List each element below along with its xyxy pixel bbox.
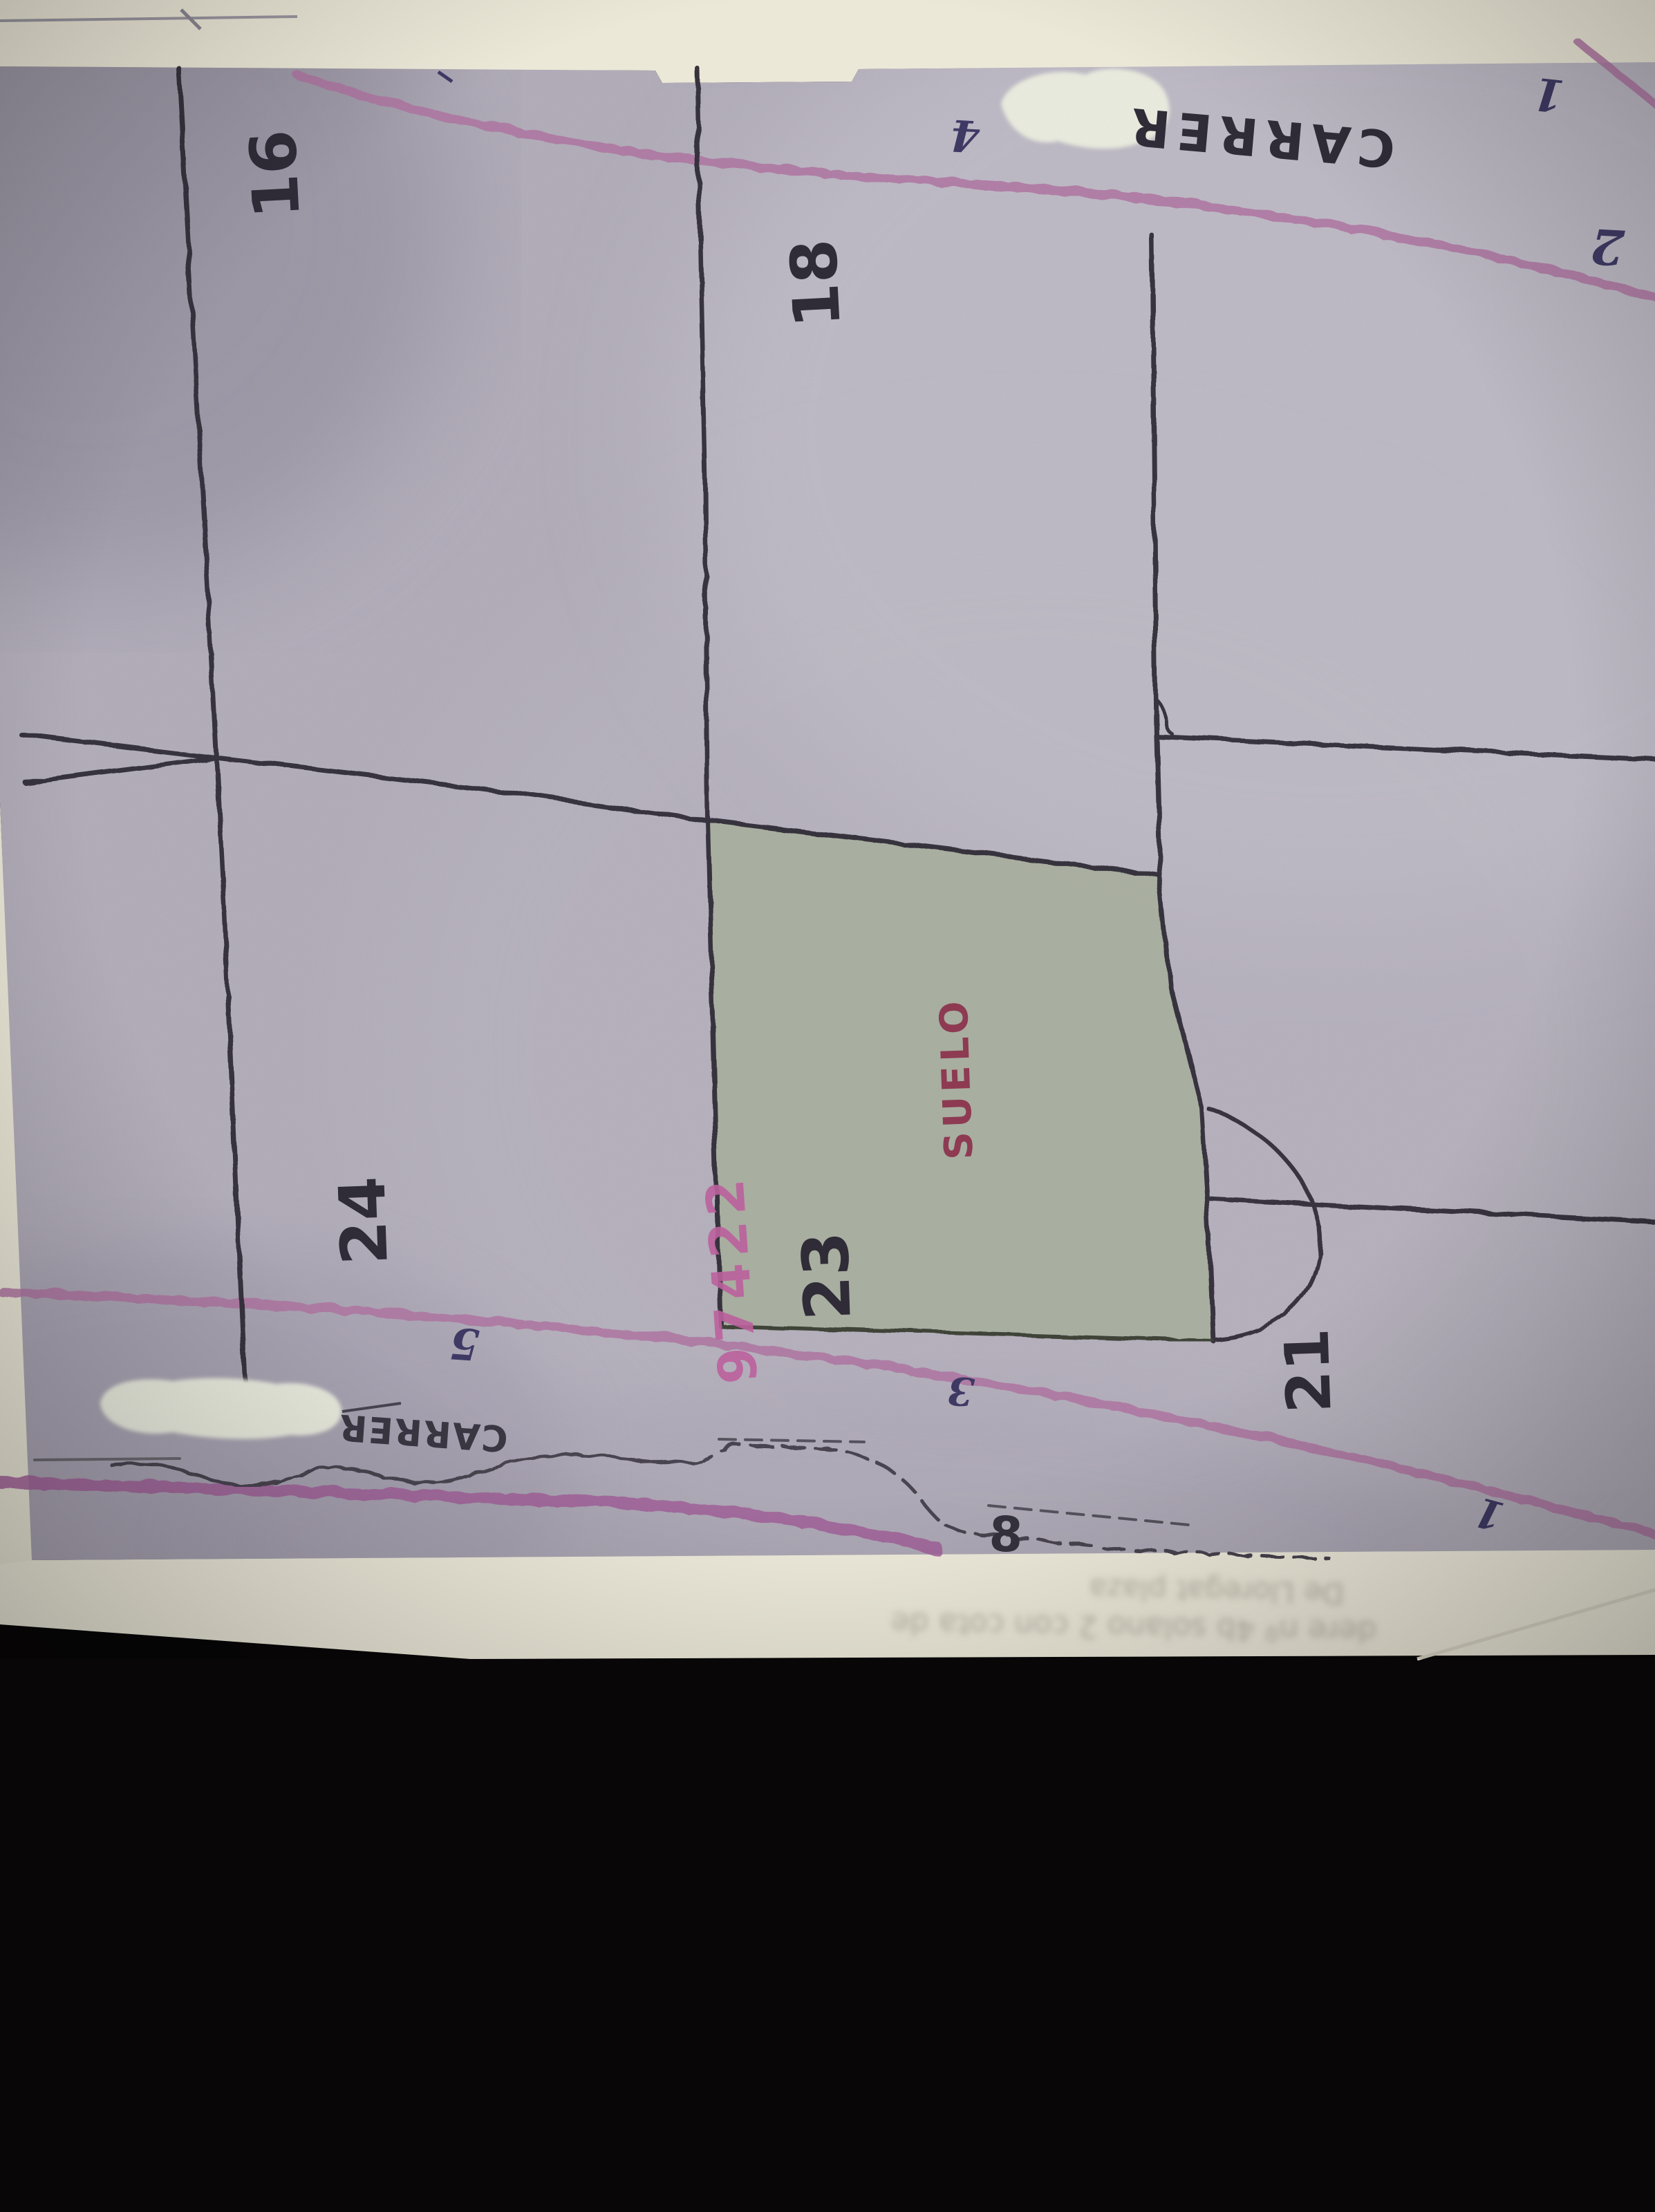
cadastral-map-photo: 16 18 24 23 21 CARRER CARRER SUELO 97422… <box>0 0 1655 2212</box>
photo-vignette <box>0 0 1655 1659</box>
